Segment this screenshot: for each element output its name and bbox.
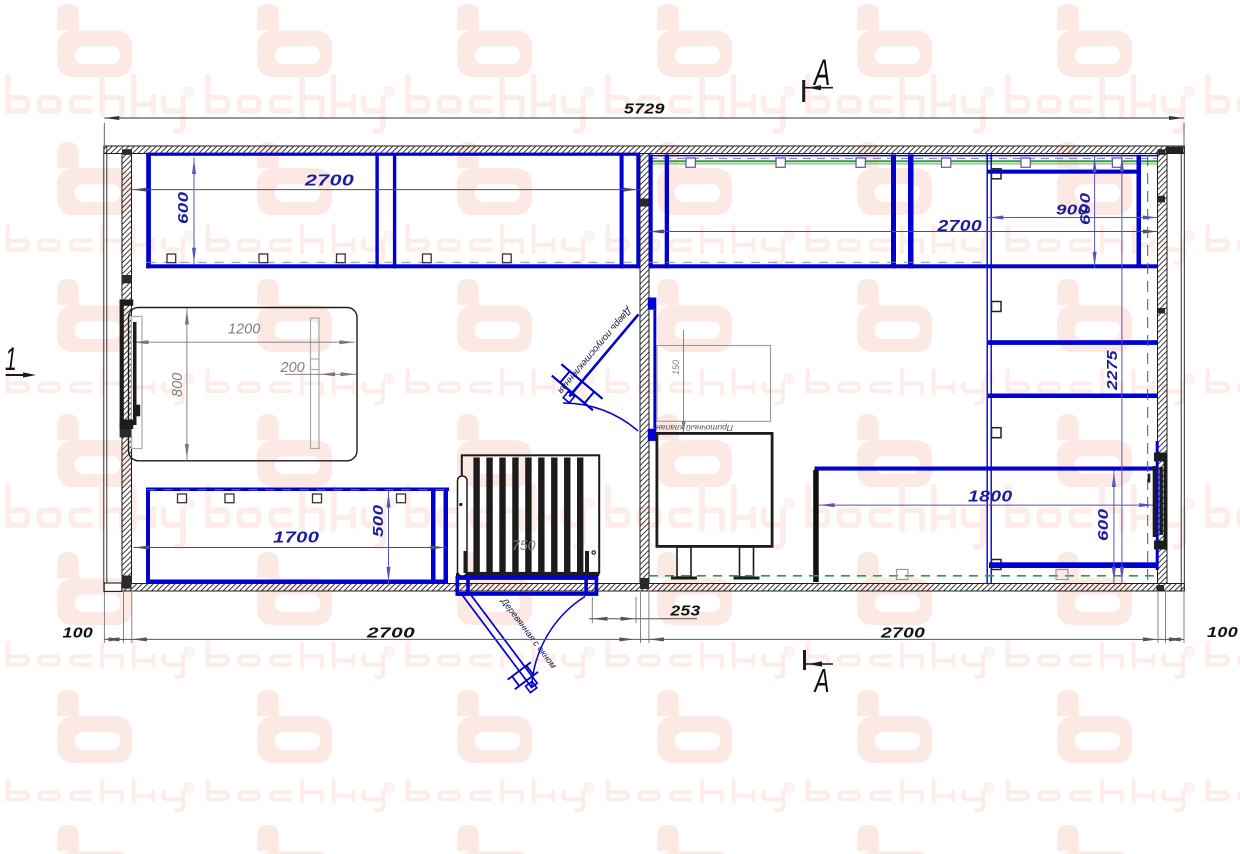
svg-text:1: 1 [5, 340, 17, 377]
svg-text:A: A [812, 52, 830, 93]
svg-text:1200: 1200 [228, 322, 260, 338]
svg-text:2700: 2700 [366, 624, 415, 641]
svg-text:253: 253 [669, 604, 700, 619]
svg-text:600: 600 [1077, 192, 1094, 225]
svg-text:1700: 1700 [273, 529, 319, 546]
svg-text:Приточный клапан: Приточный клапан [656, 423, 733, 433]
svg-text:800: 800 [170, 373, 186, 397]
svg-text:150: 150 [671, 360, 681, 375]
svg-text:600: 600 [1095, 508, 1112, 541]
svg-text:2700: 2700 [880, 623, 925, 640]
svg-text:200: 200 [280, 360, 305, 376]
svg-text:1800: 1800 [968, 487, 1013, 505]
svg-text:100: 100 [1207, 623, 1239, 640]
svg-text:2700: 2700 [304, 171, 355, 188]
svg-text:750: 750 [512, 537, 536, 553]
svg-text:500: 500 [370, 504, 387, 537]
svg-text:A: A [813, 662, 830, 699]
svg-text:2700: 2700 [936, 217, 982, 235]
svg-text:5729: 5729 [624, 101, 665, 117]
svg-text:2275: 2275 [1105, 349, 1120, 391]
svg-text:600: 600 [175, 191, 192, 224]
svg-text:100: 100 [63, 624, 94, 640]
